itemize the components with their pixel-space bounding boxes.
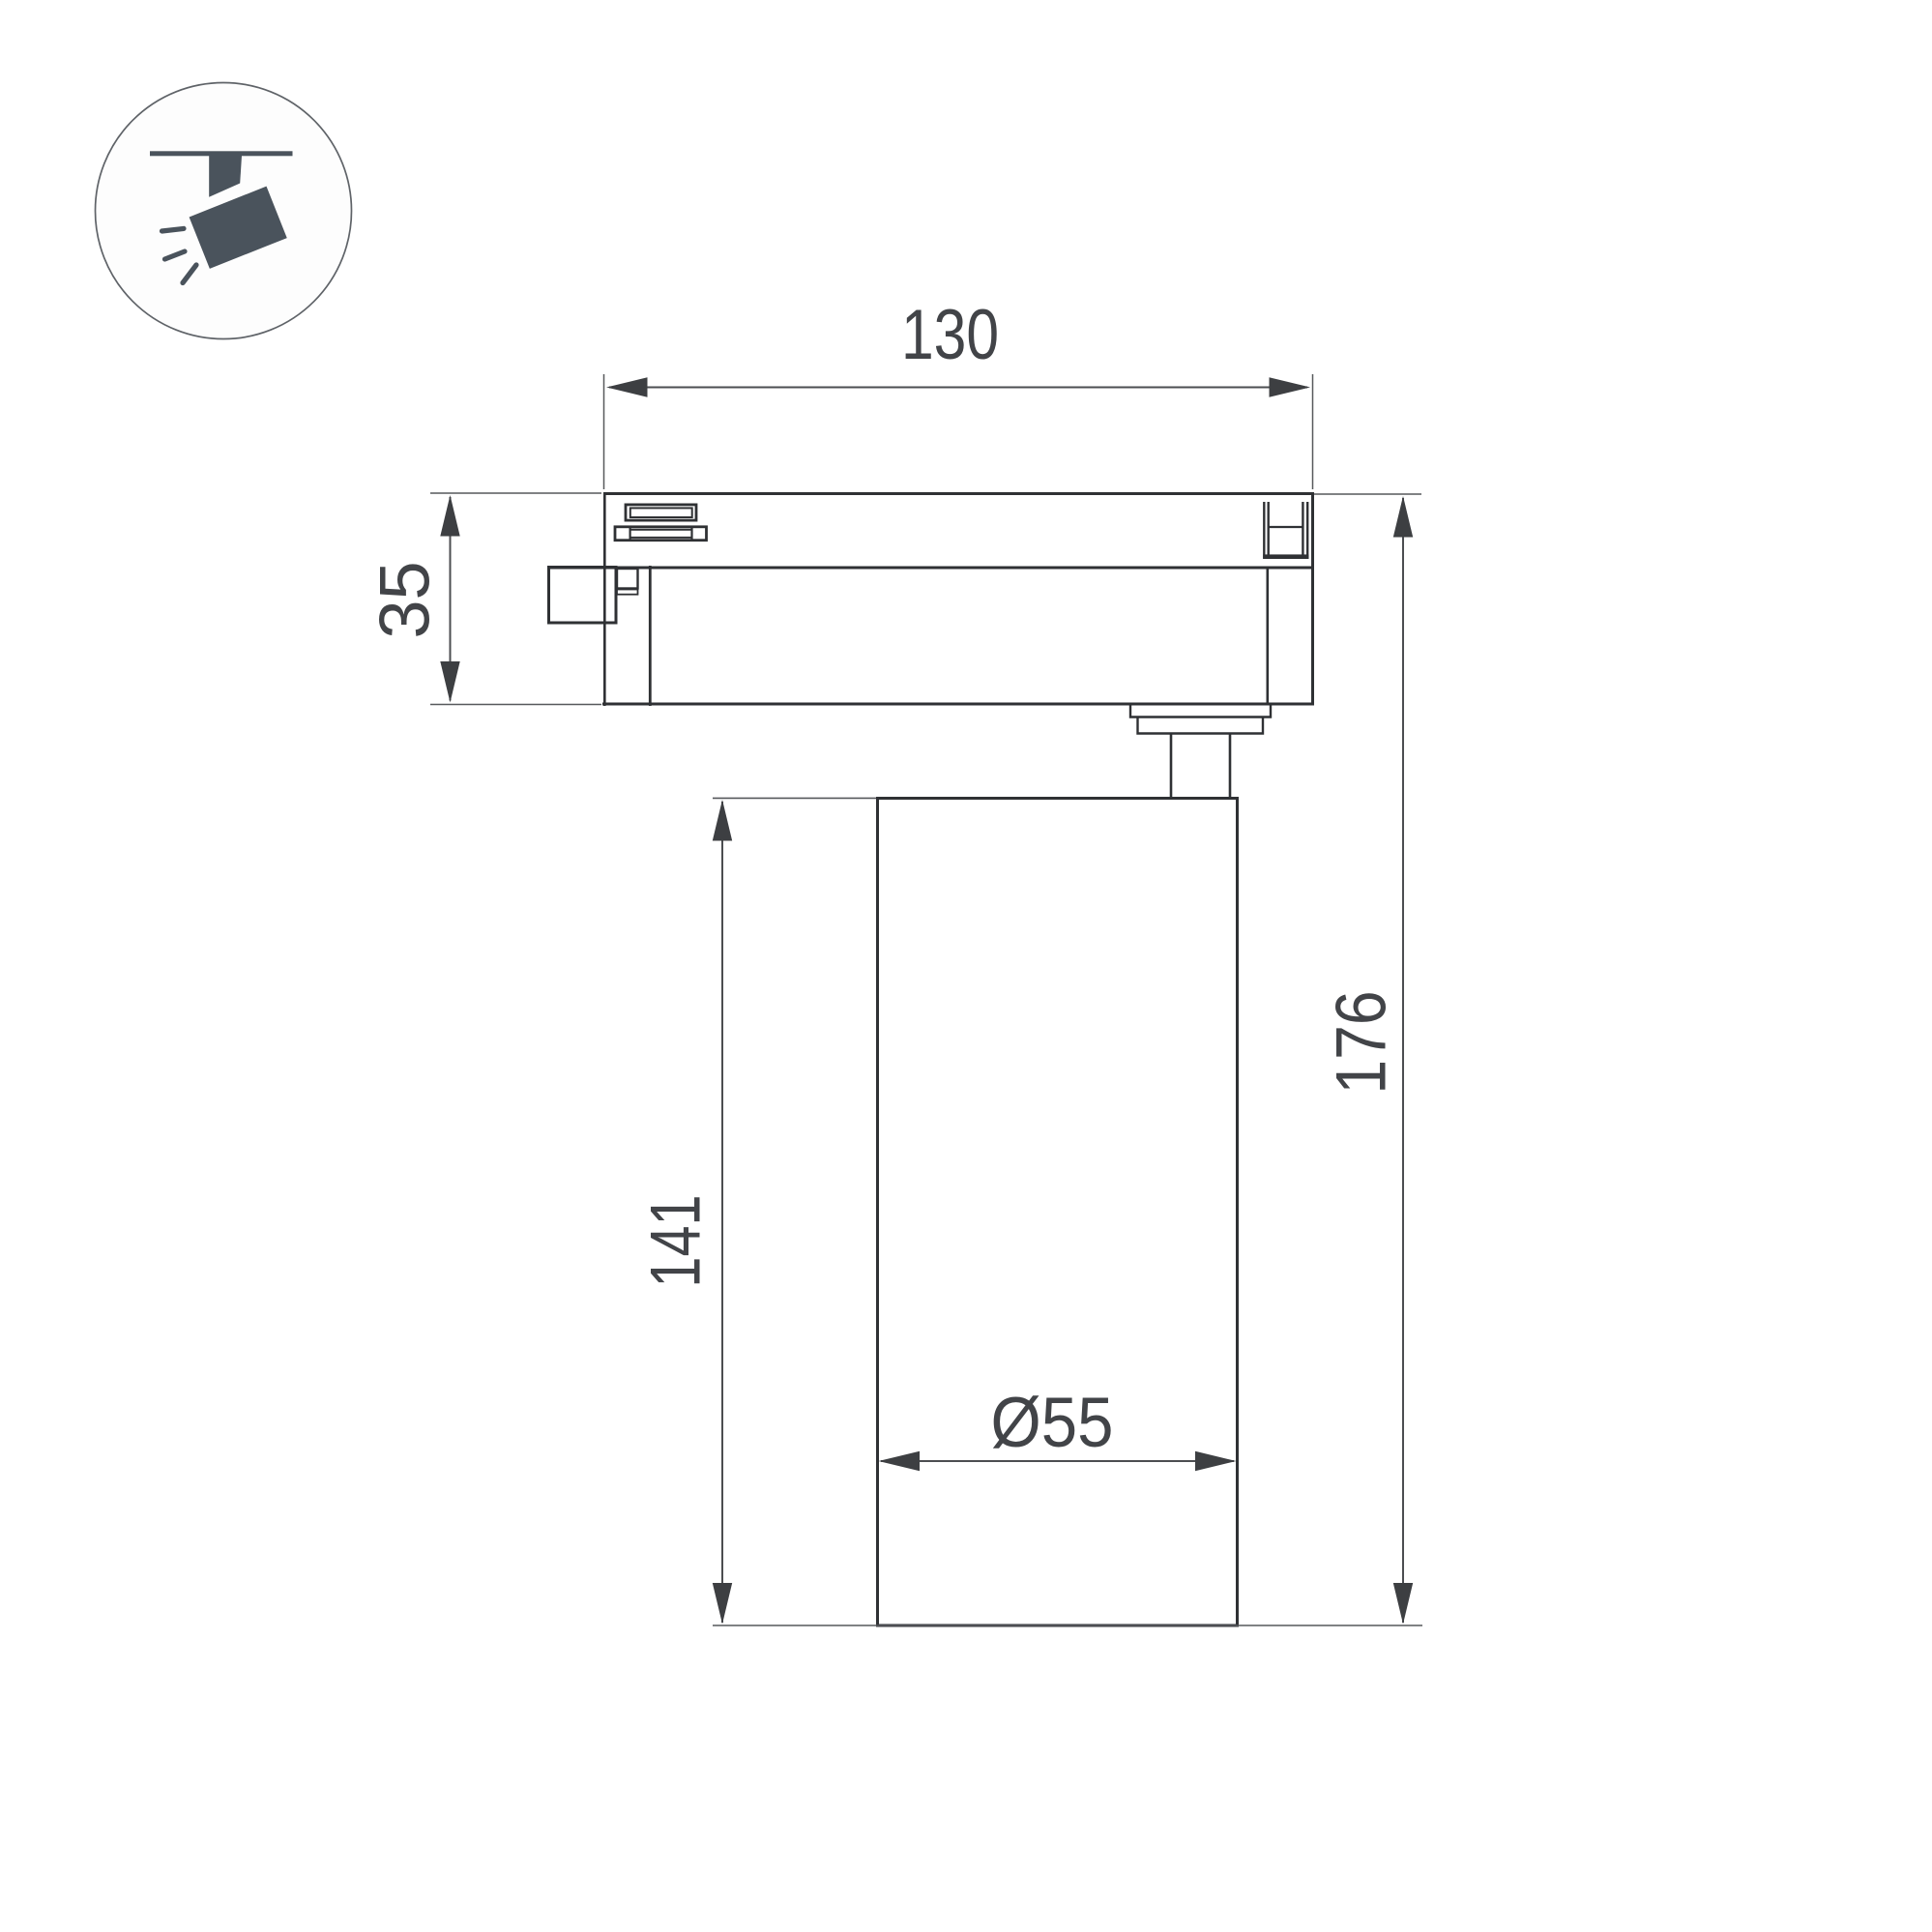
svg-text:35: 35: [366, 561, 444, 638]
svg-text:141: 141: [635, 1194, 715, 1287]
svg-text:130: 130: [901, 296, 999, 375]
svg-text:Ø55: Ø55: [991, 1383, 1114, 1461]
svg-text:176: 176: [1322, 990, 1401, 1094]
